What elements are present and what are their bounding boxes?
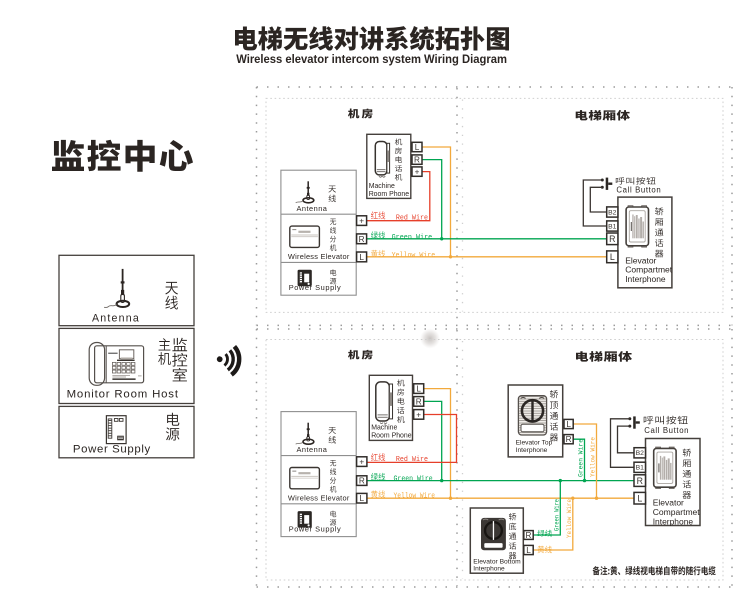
svg-text:L: L: [415, 143, 420, 152]
svg-text:Monitor Room Host: Monitor Room Host: [67, 389, 179, 401]
svg-text:Green Wire: Green Wire: [392, 234, 433, 242]
svg-text:R: R: [414, 156, 420, 165]
svg-text:R: R: [359, 477, 365, 486]
svg-text:L: L: [360, 494, 365, 503]
svg-text:Yellow Wire: Yellow Wire: [590, 437, 598, 477]
svg-text:+: +: [416, 410, 421, 419]
svg-text:B2: B2: [636, 450, 645, 457]
svg-text:L: L: [359, 253, 364, 262]
svg-text:L: L: [566, 420, 571, 429]
svg-text:Antenna: Antenna: [297, 445, 328, 454]
svg-text:L: L: [526, 546, 531, 555]
svg-text:R: R: [566, 435, 572, 444]
svg-text:Call Button: Call Button: [644, 426, 688, 435]
svg-text:Interphone: Interphone: [625, 274, 666, 284]
svg-text:Interphone: Interphone: [653, 516, 694, 526]
svg-text:Antenna: Antenna: [297, 204, 328, 213]
svg-text:L: L: [416, 385, 421, 394]
svg-text:R: R: [609, 234, 615, 244]
svg-text:Interphone: Interphone: [516, 447, 548, 454]
svg-text:B2: B2: [608, 209, 617, 216]
svg-text:Green Wire: Green Wire: [578, 439, 586, 477]
svg-text:Power Supply: Power Supply: [289, 283, 341, 292]
svg-text:Red Wire: Red Wire: [396, 456, 428, 464]
svg-text:Interphone: Interphone: [473, 565, 505, 572]
svg-text:Room Phone: Room Phone: [371, 430, 411, 439]
svg-text:Wireless Elevator: Wireless Elevator: [288, 252, 350, 261]
svg-text:R: R: [637, 476, 643, 486]
svg-text:R: R: [359, 235, 365, 244]
svg-text:Power Supply: Power Supply: [73, 443, 151, 455]
svg-text:Wireless elevator intercom sys: Wireless elevator intercom system Wiring…: [236, 54, 507, 66]
svg-text:Red Wire: Red Wire: [396, 214, 428, 222]
svg-text:Green Wire: Green Wire: [394, 475, 433, 483]
svg-text:Yellow Wire: Yellow Wire: [392, 252, 436, 260]
svg-text:B1: B1: [608, 223, 617, 230]
svg-text:L: L: [637, 493, 642, 503]
svg-text:B1: B1: [636, 465, 645, 472]
svg-text:Yellow Wire: Yellow Wire: [566, 499, 574, 538]
svg-text:+: +: [415, 168, 420, 177]
svg-text:Green Wire: Green Wire: [554, 499, 562, 531]
svg-text:Yellow Wire: Yellow Wire: [394, 493, 436, 501]
svg-text:L: L: [610, 252, 615, 262]
svg-text:R: R: [526, 531, 532, 540]
svg-text:Elevator Top: Elevator Top: [516, 439, 553, 446]
svg-text:Call Button: Call Button: [616, 186, 660, 195]
svg-text:Room Phone: Room Phone: [369, 189, 409, 198]
svg-text:+: +: [359, 217, 364, 226]
svg-text:+: +: [359, 458, 364, 467]
svg-text:Power Supply: Power Supply: [289, 525, 341, 534]
svg-text:Wireless Elevator: Wireless Elevator: [288, 493, 350, 502]
svg-text:R: R: [416, 397, 422, 406]
